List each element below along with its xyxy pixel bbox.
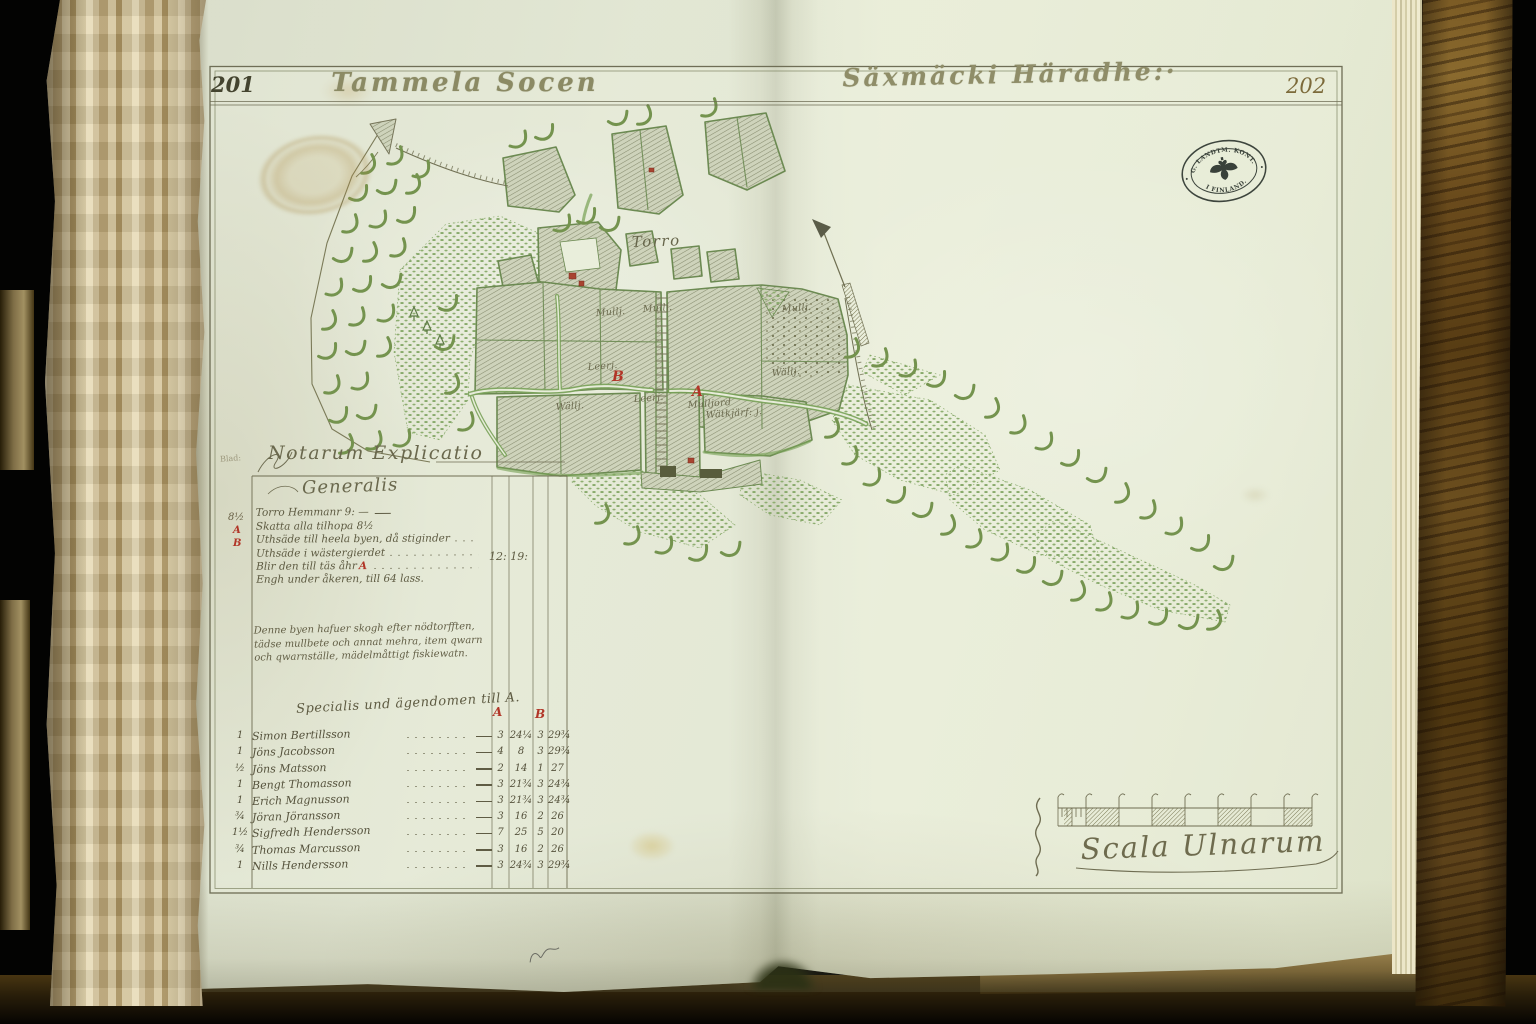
page-fragment bbox=[0, 290, 34, 470]
parcel-label: Wällj. bbox=[771, 366, 800, 379]
value-a2: 24¼ bbox=[509, 730, 533, 741]
value-a1: 3 bbox=[492, 730, 509, 741]
value-b1: 2 bbox=[533, 844, 548, 855]
mantal-value: 1½ bbox=[228, 827, 252, 838]
mantal-value: 1 bbox=[228, 860, 252, 871]
marker-b: B bbox=[611, 369, 624, 385]
red-letter-a: A bbox=[359, 560, 367, 572]
value-a2: 25 bbox=[509, 827, 533, 838]
parcel-label: Mullj. bbox=[641, 302, 672, 315]
value-b2: 24¾ bbox=[548, 779, 567, 790]
fold-note: Blad: bbox=[220, 453, 242, 463]
parcel-label: Wällj. bbox=[555, 400, 584, 413]
value-a2: 21¾ bbox=[509, 795, 533, 806]
left-page-stack-edges bbox=[40, 0, 206, 1006]
book-cover-right-edge bbox=[1415, 0, 1512, 1006]
stamp-text-bottom: I FINLAND. bbox=[1204, 177, 1250, 197]
value-b1: 3 bbox=[533, 795, 548, 806]
table-row: ½ Jöns Matsson 2 14 1 27 bbox=[228, 757, 567, 773]
mantal-value: ½ bbox=[228, 763, 252, 774]
parcel-label: Leerj. bbox=[632, 392, 664, 405]
value-a2: 14 bbox=[509, 763, 533, 774]
mantal-value: 1 bbox=[228, 746, 252, 757]
left-page-number: 201 bbox=[211, 72, 255, 97]
generalis-subheading: Generalis bbox=[302, 474, 399, 498]
value-b2: 26 bbox=[548, 811, 567, 822]
margin-mark-skatt: 8½ bbox=[228, 512, 244, 523]
page-fragment bbox=[0, 600, 30, 930]
parcel-label: Leerj. bbox=[586, 360, 618, 373]
table-row: 1 Simon Bertillsson 3 24¼ 3 29¾ bbox=[228, 725, 567, 741]
column-header-b: B bbox=[535, 707, 545, 721]
margin-mark-a: A bbox=[233, 525, 241, 536]
mantal-value: 1 bbox=[228, 779, 252, 790]
value-b1: 2 bbox=[533, 811, 548, 822]
value-b2: 27 bbox=[548, 763, 567, 774]
mantal-value: ¾ bbox=[228, 811, 252, 822]
value-a1: 4 bbox=[492, 746, 509, 757]
table-row: 1½ Sigfredh Hendersson 7 25 5 20 bbox=[228, 822, 567, 838]
generalis-line: Engh under åkeren, till 64 lass. bbox=[256, 571, 480, 586]
value-b1: 5 bbox=[533, 827, 548, 838]
survey-office-stamp-icon: G. LANDTM. KONT. I FINLAND. bbox=[1175, 132, 1272, 211]
generalis-lines: Torro Hemmanr 9: — Skatta alla tilhopa 8… bbox=[256, 504, 481, 586]
value-a1: 2 bbox=[492, 763, 509, 774]
value-b1: 3 bbox=[533, 860, 548, 871]
value-a2: 16 bbox=[509, 844, 533, 855]
value-b2: 29¾ bbox=[548, 746, 567, 757]
explicatio-value: 12: 19: bbox=[489, 550, 528, 563]
village-label: Torro bbox=[632, 231, 681, 251]
value-b2: 24¾ bbox=[548, 795, 567, 806]
left-page-title: Tammela Socen bbox=[300, 66, 630, 100]
value-b2: 20 bbox=[548, 827, 567, 838]
value-b1: 3 bbox=[533, 746, 548, 757]
landowner-table: 1 Simon Bertillsson 3 24¼ 3 29¾ 1 Jöns J… bbox=[228, 725, 567, 871]
mantal-value: ¾ bbox=[228, 844, 252, 855]
mantal-value: 1 bbox=[228, 730, 252, 741]
value-a1: 3 bbox=[492, 811, 509, 822]
value-b1: 1 bbox=[533, 763, 548, 774]
photographed-atlas-spread: Torro B A Mullj.Mullj.Leerj.Leerj.Mulljo… bbox=[0, 0, 1536, 1024]
table-row: 1 Jöns Jacobsson 4 8 3 29¾ bbox=[228, 741, 567, 757]
value-b1: 3 bbox=[533, 779, 548, 790]
value-a2: 8 bbox=[509, 746, 533, 757]
value-b1: 3 bbox=[533, 730, 548, 741]
table-row: ¾ Thomas Marcusson 3 16 2 26 bbox=[228, 838, 567, 854]
value-b2: 29¾ bbox=[548, 730, 567, 741]
marker-a: A bbox=[690, 384, 703, 400]
value-a1: 3 bbox=[492, 795, 509, 806]
value-a1: 3 bbox=[492, 844, 509, 855]
svg-text:I FINLAND.: I FINLAND. bbox=[1204, 177, 1250, 197]
explicatio-paragraph: Denne byen hafuer skogh efter nödtorffte… bbox=[254, 619, 507, 665]
value-b2: 26 bbox=[548, 844, 567, 855]
table-row: 1 Nills Hendersson 3 24¾ 3 29¾ bbox=[228, 855, 567, 871]
table-row: 1 Bengt Thomasson 3 21¾ 3 24¾ bbox=[228, 774, 567, 790]
table-row: ¾ Jöran Jöransson 3 16 2 26 bbox=[228, 806, 567, 822]
value-a1: 7 bbox=[492, 827, 509, 838]
parcel-label: Mullj. bbox=[780, 302, 811, 315]
owner-name: Nills Hendersson bbox=[252, 856, 402, 873]
explicatio-heading: Notarum Explicatio bbox=[268, 442, 483, 464]
mantal-value: 1 bbox=[228, 795, 252, 806]
value-a2: 16 bbox=[509, 811, 533, 822]
column-header-a: A bbox=[493, 705, 502, 719]
village-yard bbox=[560, 238, 600, 272]
generalis-line: Uthsäde till heela byen, då stiginder bbox=[256, 531, 480, 546]
value-a1: 3 bbox=[492, 860, 509, 871]
right-page-number: 202 bbox=[1286, 74, 1326, 98]
margin-mark-b: B bbox=[233, 538, 241, 549]
table-row: 1 Erich Magnusson 3 21¾ 3 24¾ bbox=[228, 790, 567, 806]
value-a2: 24¾ bbox=[509, 860, 533, 871]
value-a2: 21¾ bbox=[509, 779, 533, 790]
value-b2: 29¾ bbox=[548, 860, 567, 871]
double-eagle-icon bbox=[1208, 155, 1239, 182]
parcel-label: Mullj. bbox=[594, 306, 625, 319]
value-a1: 3 bbox=[492, 779, 509, 790]
